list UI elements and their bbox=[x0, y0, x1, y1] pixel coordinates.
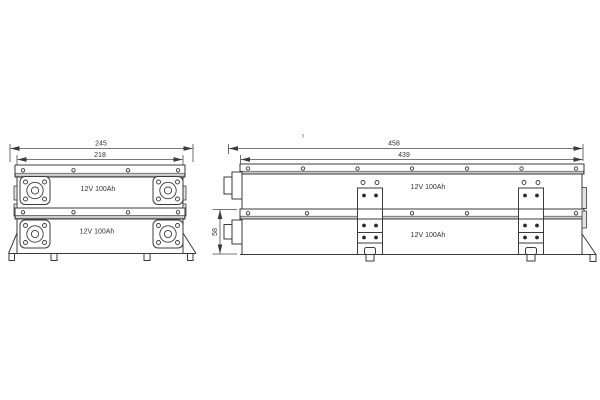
screw bbox=[246, 167, 249, 170]
top-mounting-rail bbox=[240, 164, 584, 174]
mounting-strap bbox=[358, 181, 383, 262]
screw bbox=[246, 212, 249, 215]
screw bbox=[465, 167, 468, 170]
screw bbox=[410, 212, 413, 215]
foot bbox=[9, 254, 15, 261]
foot bbox=[51, 254, 57, 261]
top-mounting-rail bbox=[15, 165, 185, 177]
screw bbox=[126, 169, 129, 172]
screw bbox=[356, 167, 359, 170]
screw bbox=[465, 212, 468, 215]
gusset-right bbox=[582, 234, 596, 255]
side-connector-plug bbox=[224, 177, 232, 194]
terminal-flange bbox=[20, 177, 50, 205]
screw bbox=[72, 169, 75, 172]
edge-tab bbox=[582, 188, 587, 209]
screw bbox=[21, 211, 24, 214]
battery-label: 12V 100Ah bbox=[411, 184, 446, 191]
screw bbox=[574, 212, 577, 215]
battery-label: 12V 100Ah bbox=[411, 232, 446, 239]
lower-battery-front: 12V 100Ah bbox=[17, 219, 183, 254]
edge-tab bbox=[582, 211, 587, 228]
terminal-flange bbox=[153, 177, 183, 205]
dim-label-245: 245 bbox=[95, 141, 107, 148]
dim-body-width: 218 bbox=[17, 152, 183, 165]
screw bbox=[176, 169, 179, 172]
screw bbox=[301, 167, 304, 170]
screw bbox=[305, 212, 308, 215]
dim-body-length: 439 bbox=[241, 152, 583, 164]
front-view: 245 218 12V 100Ah bbox=[9, 141, 197, 261]
side-connector bbox=[232, 172, 242, 199]
foot bbox=[590, 255, 596, 262]
battery-label: 12V 100Ah bbox=[80, 229, 115, 236]
dim-label-458: 458 bbox=[388, 141, 400, 148]
dim-label-58: 58 bbox=[212, 228, 219, 236]
side-connector bbox=[232, 220, 242, 244]
middle-mounting-rail bbox=[15, 208, 185, 219]
screw bbox=[21, 169, 24, 172]
drawing-canvas: 245 218 12V 100Ah bbox=[0, 0, 600, 400]
terminal-flange bbox=[20, 220, 50, 248]
gusset-right bbox=[183, 233, 196, 254]
side-tab bbox=[14, 186, 17, 200]
mounting-strap bbox=[519, 181, 544, 262]
screw bbox=[176, 211, 179, 214]
battery-technical-drawing: 245 218 12V 100Ah bbox=[0, 0, 600, 400]
dim-label-439: 439 bbox=[398, 152, 410, 159]
dim-label-218: 218 bbox=[94, 152, 106, 159]
gusset-left bbox=[9, 233, 18, 254]
screw bbox=[410, 167, 413, 170]
foot bbox=[144, 254, 150, 261]
battery-label: 12V 100Ah bbox=[81, 186, 116, 193]
side-connector-plug bbox=[224, 225, 232, 240]
screw bbox=[520, 167, 523, 170]
foot bbox=[188, 254, 194, 261]
screw bbox=[574, 167, 577, 170]
screw bbox=[72, 211, 75, 214]
side-view: 458 439 12V 100Ah bbox=[212, 134, 597, 262]
screw bbox=[126, 211, 129, 214]
terminal-flange bbox=[153, 220, 183, 248]
